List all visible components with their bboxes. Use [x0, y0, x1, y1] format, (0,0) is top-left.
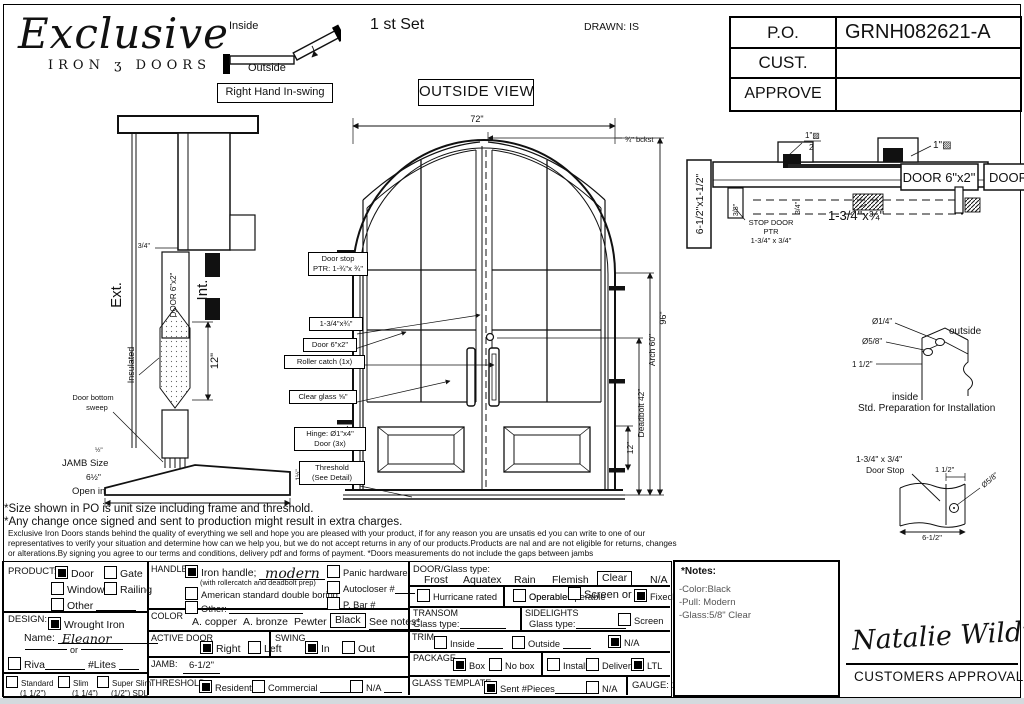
install-inside: inside	[892, 392, 919, 403]
customers-approval-label: CUSTOMERS APPROVAL	[854, 669, 1024, 686]
jamb-value[interactable]: 6-1/2"	[183, 660, 220, 674]
checkbox-fixed[interactable]	[634, 589, 647, 602]
stop-size: 1-3/4" x 3/4"	[856, 454, 902, 464]
dim-backset: ¾" bckst	[625, 135, 654, 144]
design-name-label: Name:	[24, 632, 55, 644]
threshold-na-field[interactable]	[384, 683, 402, 693]
hurricane-label: Hurricane rated	[433, 592, 497, 602]
color-black-selected[interactable]: Black	[330, 613, 366, 628]
callout-door: Door 6"x2"	[303, 338, 357, 352]
logo-swirl-icon: ʒ	[114, 58, 126, 73]
swing-in-label: In	[321, 643, 330, 655]
callout-ptr: 1-3/4"x¾"	[309, 317, 363, 331]
checkbox-swing-out[interactable]	[342, 641, 355, 654]
product-gate-label: Gate	[120, 568, 143, 580]
screen-or-label: Screen or	[584, 589, 632, 601]
head-stop-2: PTR	[764, 227, 780, 236]
head-door-label: DOOR 6"x2"	[903, 170, 976, 185]
open-in-label: Open in	[72, 486, 105, 498]
checkbox-sidelights-screen[interactable]	[618, 613, 631, 626]
jamb-dim-34: 3/4"	[138, 243, 151, 250]
sweep-label-2: sweep	[86, 403, 108, 412]
super-slim-sub: (1/2") SDL	[111, 689, 148, 698]
design-label: DESIGN:	[8, 614, 47, 626]
sidelights-glass-label: Glass type:	[529, 619, 576, 629]
po-table: P.O. GRNH082621-A CUST. APPROVE	[729, 16, 1022, 112]
trim-inside-field[interactable]	[477, 639, 503, 649]
ext-label: Ext.	[108, 282, 125, 308]
install-detail-drawing: Ø1/4" Ø5/8" outside 1 1/2" inside	[850, 312, 1022, 404]
riva-label: Riva	[24, 659, 45, 671]
color-copper[interactable]: A. copper	[192, 616, 237, 629]
install-dim112: 1 1/2"	[852, 360, 873, 369]
signature-line[interactable]	[846, 663, 1018, 665]
callout-doorstop-line1: Door stop	[311, 254, 365, 264]
checkbox-railing[interactable]	[104, 582, 117, 595]
checkbox-swing-in[interactable]	[305, 641, 318, 654]
stop-d58: Ø5/8"	[980, 470, 1001, 489]
sidelights-label: SIDELIGHTS	[525, 608, 579, 619]
product-door-label: Door	[71, 568, 94, 580]
dim-96: 96"	[658, 311, 668, 324]
scan-artifact-strip	[0, 698, 1024, 704]
callout-doorstop: Door stop PTR: 1-¾"x ¾"	[308, 252, 368, 276]
checkbox-product-other[interactable]	[51, 598, 64, 611]
head-half-num: 1"▨	[805, 131, 820, 140]
po-label: P.O.	[731, 18, 835, 47]
cust-label: CUST.	[731, 48, 835, 77]
handle-other-field[interactable]	[229, 604, 303, 614]
transom-label: TRANSOM	[413, 608, 458, 619]
po-value[interactable]: GRNH082621-A	[845, 18, 991, 47]
dim-72: 72"	[470, 114, 483, 124]
transom-glass-label: Glass type:	[413, 619, 460, 629]
glass-template-label: GLASS TEMPLATE	[412, 678, 491, 689]
checkbox-operable[interactable]	[513, 589, 526, 602]
active-right-label: Right	[216, 643, 241, 655]
note-small-2: representatives to verify your situation…	[8, 539, 677, 549]
callout-hinge-line1: Hinge: Ø1"x4"	[297, 429, 363, 439]
checkbox-super-slim[interactable]	[97, 676, 109, 688]
head-half-den: 2	[809, 143, 814, 152]
head-ptr-dim: 1-3/4"x¾"	[828, 208, 885, 223]
checkbox-iron-handle[interactable]	[185, 565, 198, 578]
callout-threshold: Threshold (See Detail)	[299, 461, 365, 485]
dim-deadbolt: Deadbolt 42"	[636, 389, 646, 438]
lites-label: #Lites	[88, 659, 116, 671]
trim-outside-field[interactable]	[563, 639, 591, 649]
checkbox-commercial[interactable]	[252, 680, 265, 693]
checkbox-residential[interactable]	[199, 680, 212, 693]
dim-half-left: ½"	[95, 446, 103, 454]
checkbox-trim-inside[interactable]	[434, 636, 447, 649]
autocloser-label: Autocloser #	[343, 584, 395, 594]
color-label: COLOR	[151, 611, 183, 622]
checkbox-handle-other[interactable]	[185, 601, 198, 614]
jamb-size-label: JAMB Size	[62, 458, 108, 470]
sidelights-screen-label: Screen	[634, 616, 663, 626]
head-stop-3: 1-3/4" x 3/4"	[751, 236, 792, 245]
design-or-divider: or	[10, 645, 138, 656]
checkbox-trim-na[interactable]	[608, 635, 621, 648]
product-other-field[interactable]	[96, 601, 136, 611]
sweep-label-1: Door bottom	[72, 393, 113, 402]
box-label: Box	[469, 661, 485, 671]
product-railing-label: Railing	[120, 584, 152, 596]
commercial-label: Commercial	[268, 683, 318, 693]
view-title: OUTSIDE VIEW	[418, 79, 534, 106]
fixed-label: Fixed	[650, 592, 673, 602]
install-d14: Ø1/4"	[872, 317, 892, 326]
install-outside: outside	[949, 326, 982, 337]
callout-threshold-line2: (See Detail)	[302, 473, 362, 483]
order-sheet: Exclusive IRON ʒ DOORS Inside Outside Ri…	[0, 0, 1024, 704]
stop-detail-drawing: 1-3/4" x 3/4" Door Stop 1 1/2" Ø5/8" 6-1…	[850, 446, 1024, 543]
install-caption: Std. Preparation for Installation	[858, 403, 995, 416]
nobox-label: No box	[505, 661, 534, 671]
callout-doorstop-line2: PTR: 1-¾"x ¾"	[311, 264, 365, 274]
checkbox-riva[interactable]	[8, 657, 21, 670]
pbar-field[interactable]	[378, 600, 402, 610]
product-window-label: Window	[67, 584, 104, 596]
checkbox-american-boring[interactable]	[185, 587, 198, 600]
head-stop-1: STOP DOOR	[749, 218, 794, 227]
glass-clear-selected[interactable]: Clear	[597, 571, 632, 586]
dim-arch: Arch 60"	[647, 334, 657, 366]
int-label: Int.	[194, 280, 211, 301]
checkbox-panic[interactable]	[327, 565, 340, 578]
head-section-drawing: 6-1/2"x1-1/2" 1"▨ 2 1"▨ 3/8" 3/4" STOP D…	[683, 128, 1024, 253]
insulated-label: Insulated	[126, 347, 136, 384]
checkbox-template-na[interactable]	[586, 681, 599, 694]
checkbox-active-left[interactable]	[248, 641, 261, 654]
swing-out-label: Out	[358, 643, 375, 655]
jamb-size-dim: 6½"	[86, 472, 101, 483]
color-pewter[interactable]: Pewter	[294, 616, 327, 629]
approve-label: APPROVE	[731, 78, 835, 109]
callout-hinge: Hinge: Ø1"x4" Door (3x)	[294, 427, 366, 451]
stop-dim112: 1 1/2"	[935, 465, 955, 474]
callout-threshold-line1: Threshold	[302, 463, 362, 473]
checkbox-slim[interactable]	[58, 676, 70, 688]
checkbox-nobox[interactable]	[489, 658, 502, 671]
notes-box-title: *Notes:	[681, 566, 716, 579]
standard-sub: (1 1/2")	[20, 689, 46, 698]
install-d58: Ø5/8"	[862, 337, 882, 346]
handle-label: HANDLE	[151, 564, 188, 575]
stop-width: 6-1/2"	[922, 533, 942, 542]
jamb-label: JAMB:	[151, 659, 178, 670]
logo-doors: DOORS	[136, 58, 211, 73]
customer-signature[interactable]: Natalie Wildt	[851, 615, 1024, 658]
checkbox-trim-outside[interactable]	[512, 636, 525, 649]
pbar-label: P. Bar #	[343, 600, 375, 610]
trim-inside-label: Inside	[450, 639, 475, 649]
callout-roller: Roller catch (1x)	[284, 355, 365, 369]
checkbox-wrought-iron[interactable]	[48, 617, 61, 630]
iron-handle-sub: (with rollercatch and deadbolt prep)	[200, 578, 316, 587]
checkbox-autocloser[interactable]	[327, 581, 340, 594]
standard-label: Standard	[21, 679, 53, 688]
glass-na[interactable]: N/A	[650, 574, 668, 587]
american-boring-label: American standard double boring	[201, 590, 338, 600]
notes-box-line1: -Color:Black	[679, 584, 731, 596]
checkbox-door[interactable]	[55, 566, 68, 579]
threshold-label: THRESHOLD	[150, 678, 206, 689]
checkbox-ltl[interactable]	[631, 658, 644, 671]
ltl-label: LTL	[647, 661, 662, 671]
checkbox-install[interactable]	[547, 658, 560, 671]
trim-outside-label: Outside	[528, 639, 560, 649]
design-name-field[interactable]: Eleanor	[58, 631, 158, 644]
package-label: PACKAGE	[413, 653, 456, 664]
head-dim-34: 3/4"	[795, 201, 802, 214]
sent-label: Sent #Pieces	[500, 684, 555, 694]
head-door-label-2: DOOR 6"x2"	[989, 170, 1024, 185]
note-line-2: *Any change once signed and sent to prod…	[4, 515, 402, 529]
operable-label: Operable	[529, 592, 567, 602]
notes-box-line2: -Pull: Modern	[679, 597, 736, 609]
checkbox-pbar[interactable]	[327, 597, 340, 610]
set-label: 1 st Set	[370, 15, 424, 35]
riva-field[interactable]	[45, 660, 85, 670]
checkbox-box[interactable]	[453, 658, 466, 671]
checkbox-window[interactable]	[51, 582, 64, 595]
jamb-dim-12: 12"	[209, 353, 221, 369]
active-left-label: Left	[264, 643, 282, 655]
glass-flemish[interactable]: Flemish	[552, 574, 589, 587]
logo-script: Exclusive	[18, 8, 229, 61]
product-other-label: Other	[67, 600, 93, 612]
swing-label: SWING	[275, 633, 306, 644]
checkbox-threshold-na[interactable]	[350, 680, 363, 693]
install-label: Install	[563, 661, 587, 671]
color-bronze[interactable]: A. bronze	[243, 616, 288, 629]
slim-label: Slim	[73, 679, 89, 688]
logo-subtitle: IRON ʒ DOORS	[48, 58, 211, 74]
checkbox-screen[interactable]	[568, 587, 581, 600]
notes-box: *Notes: -Color:Black -Pull: Modern -Glas…	[673, 560, 840, 697]
checkbox-gate[interactable]	[104, 566, 117, 579]
glass-frost[interactable]: Frost	[424, 574, 448, 587]
dim-12: 12"	[625, 442, 635, 454]
or-label: or	[70, 645, 78, 655]
lites-field[interactable]	[119, 660, 139, 670]
note-small-1: Exclusive Iron Doors stands behind the q…	[8, 529, 645, 539]
note-small-3: or alterations.By signing you agree to o…	[8, 549, 593, 559]
glass-aquatex[interactable]: Aquatex	[463, 574, 502, 587]
design-wrought-label: Wrought Iron	[64, 619, 125, 631]
trim-label: TRIM	[412, 632, 434, 643]
checkbox-hurricane[interactable]	[417, 589, 430, 602]
swing-outside-label: Outside	[248, 62, 286, 76]
logo-iron: IRON	[48, 58, 105, 73]
threshold-na-label: N/A	[366, 683, 381, 693]
head-one: 1"▨	[933, 140, 952, 151]
panic-label: Panic hardware	[343, 568, 408, 578]
transom-glass-field[interactable]	[460, 619, 506, 629]
stop-name: Door Stop	[866, 465, 905, 475]
checkbox-sent[interactable]	[484, 681, 497, 694]
callout-hinge-line2: Door (3x)	[297, 439, 363, 449]
super-slim-label: Super Slim	[112, 679, 151, 688]
trim-na-label: N/A	[624, 638, 640, 648]
slim-sub: (1 1/4")	[72, 689, 98, 698]
head-jamb-label: 6-1/2"x1-1/2"	[694, 173, 706, 234]
notes-box-line3: -Glass:5/8" Clear	[679, 610, 751, 622]
drawn-label: DRAWN: IS	[584, 21, 639, 34]
product-label: PRODUCT:	[8, 566, 57, 578]
template-na-label: N/A	[602, 684, 618, 694]
checkbox-standard[interactable]	[6, 676, 18, 688]
autocloser-field[interactable]	[395, 584, 415, 594]
handle-other-label: Other:	[201, 604, 227, 614]
checkbox-active-right[interactable]	[200, 641, 213, 654]
callout-glass: Clear glass ⅝"	[289, 390, 357, 404]
glass-rain[interactable]: Rain	[514, 574, 536, 587]
checkbox-delivery[interactable]	[586, 658, 599, 671]
jamb-section-drawing: 3/4" DOOR 6"x2" Ext. Int. Insulated 12" …	[55, 100, 310, 510]
